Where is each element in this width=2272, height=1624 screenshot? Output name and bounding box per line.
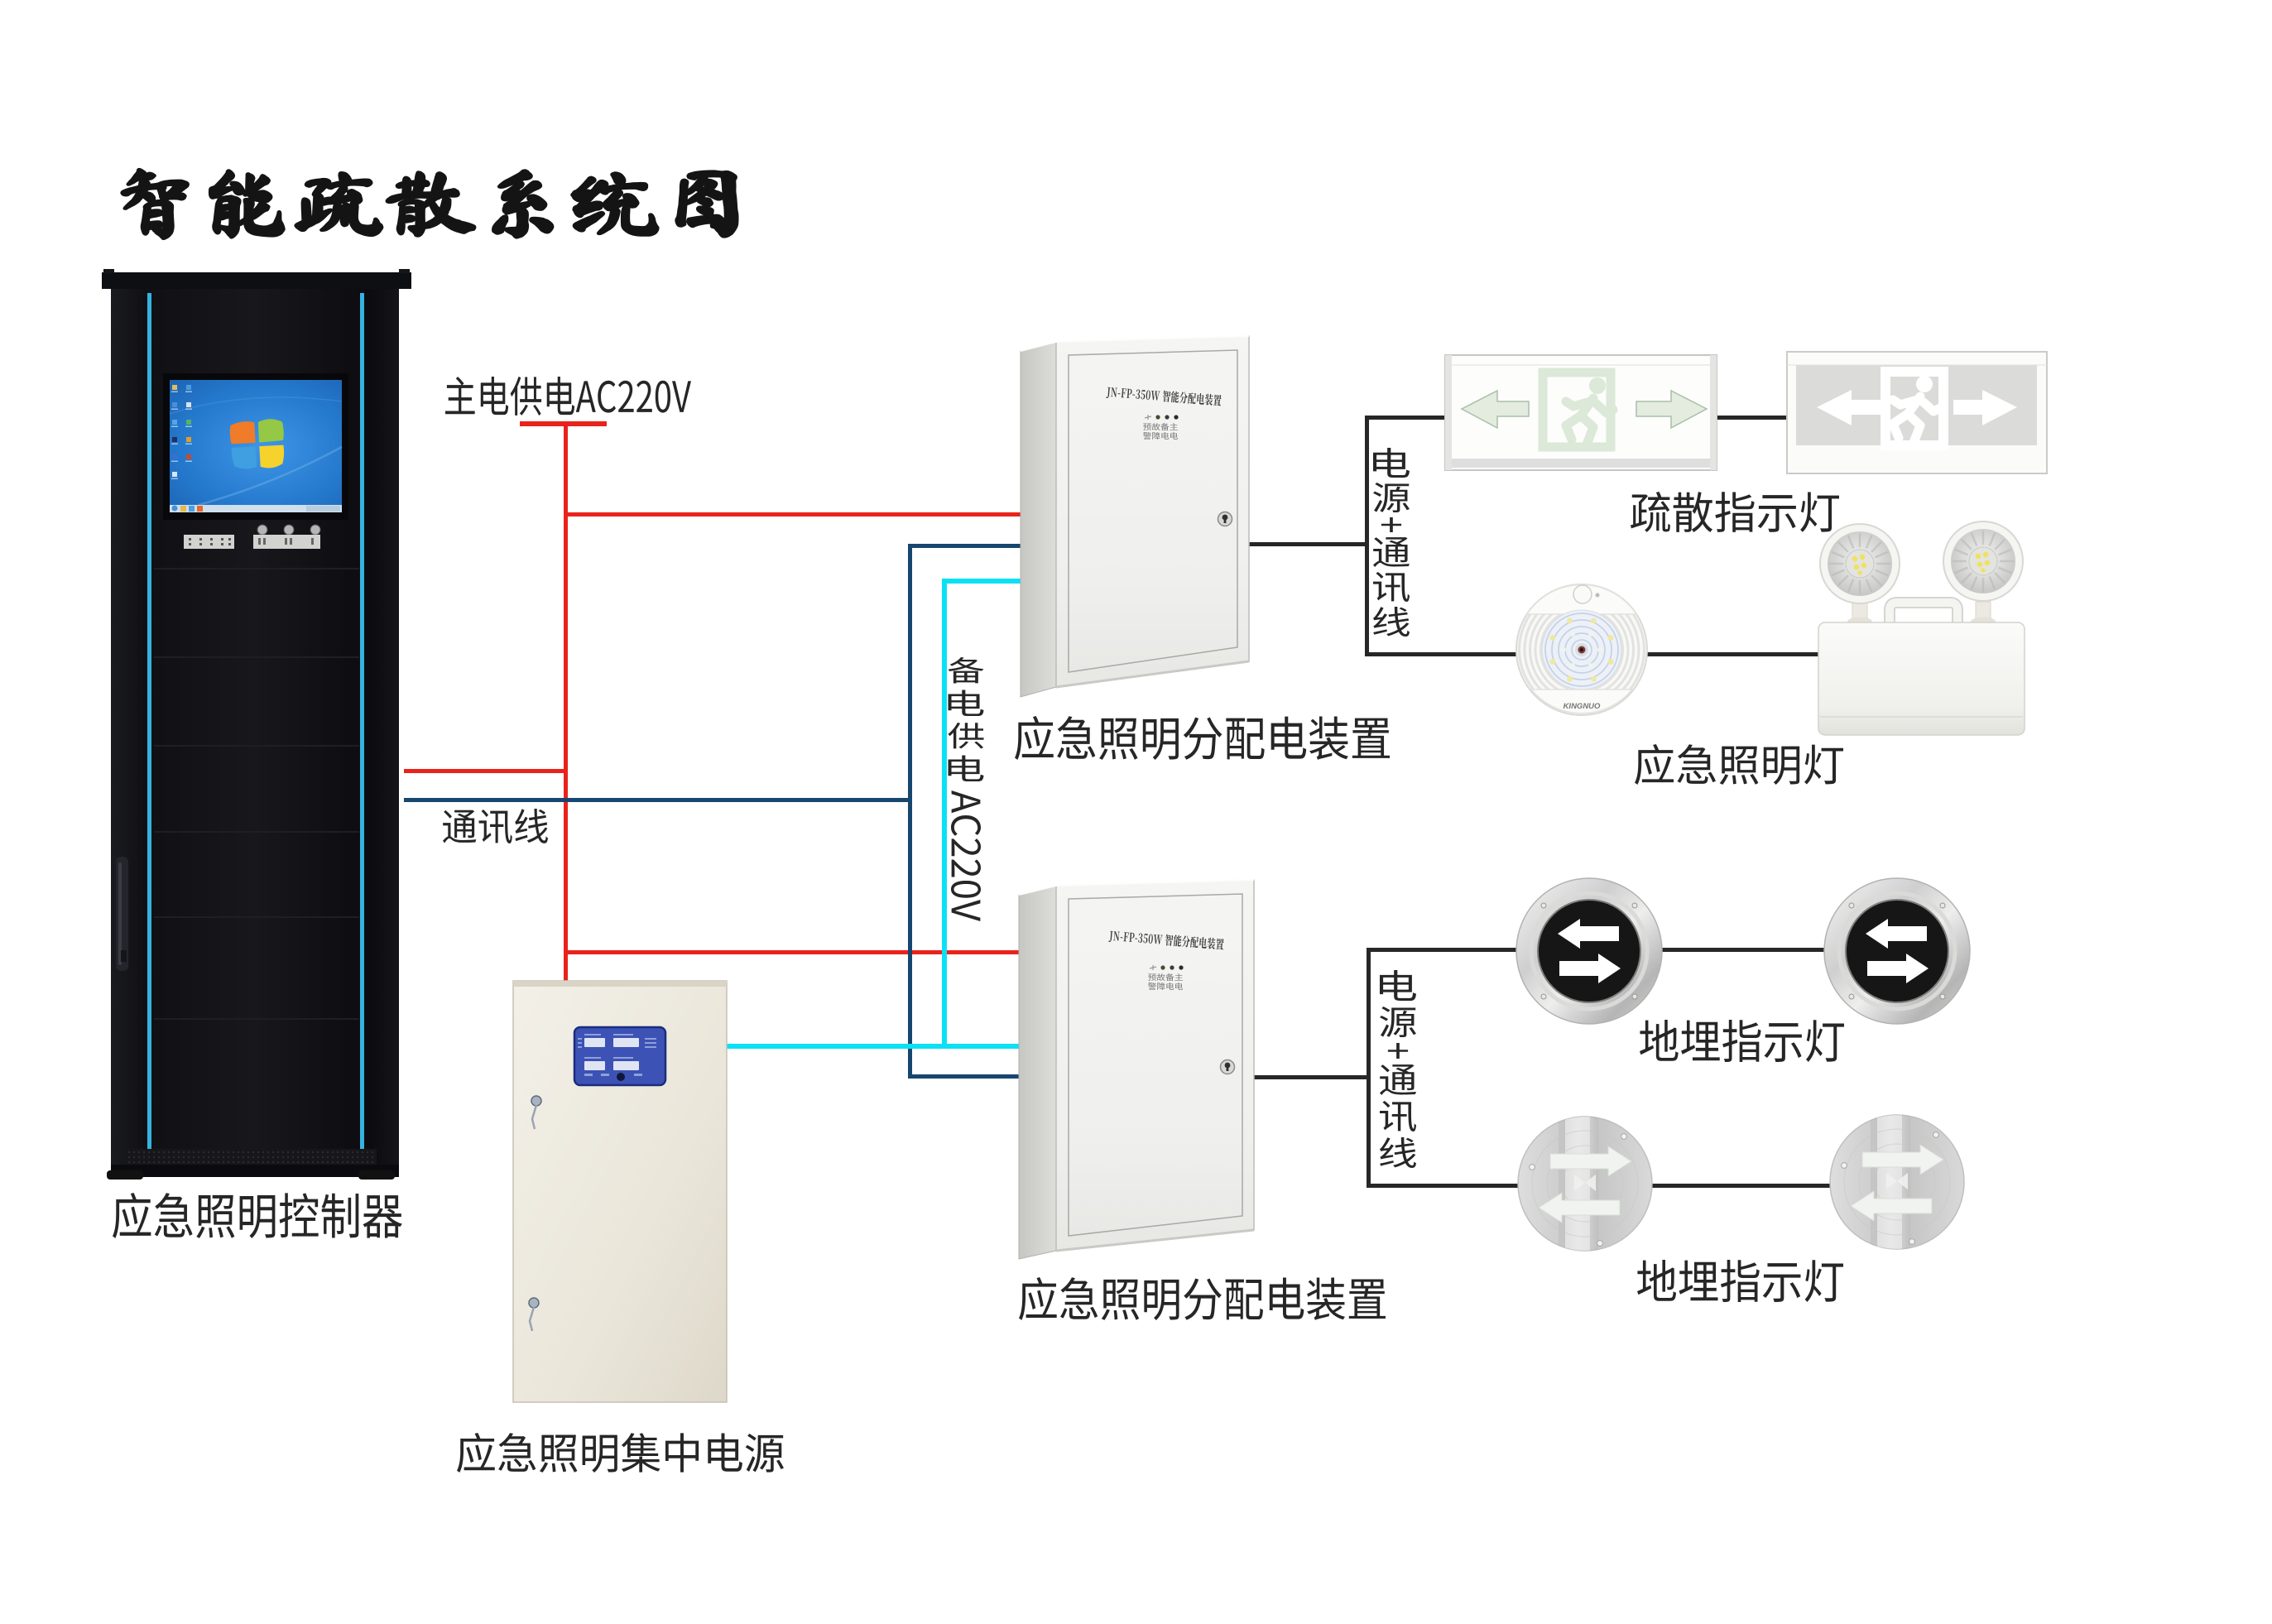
svg-text:KINGNUO: KINGNUO <box>1564 702 1601 711</box>
